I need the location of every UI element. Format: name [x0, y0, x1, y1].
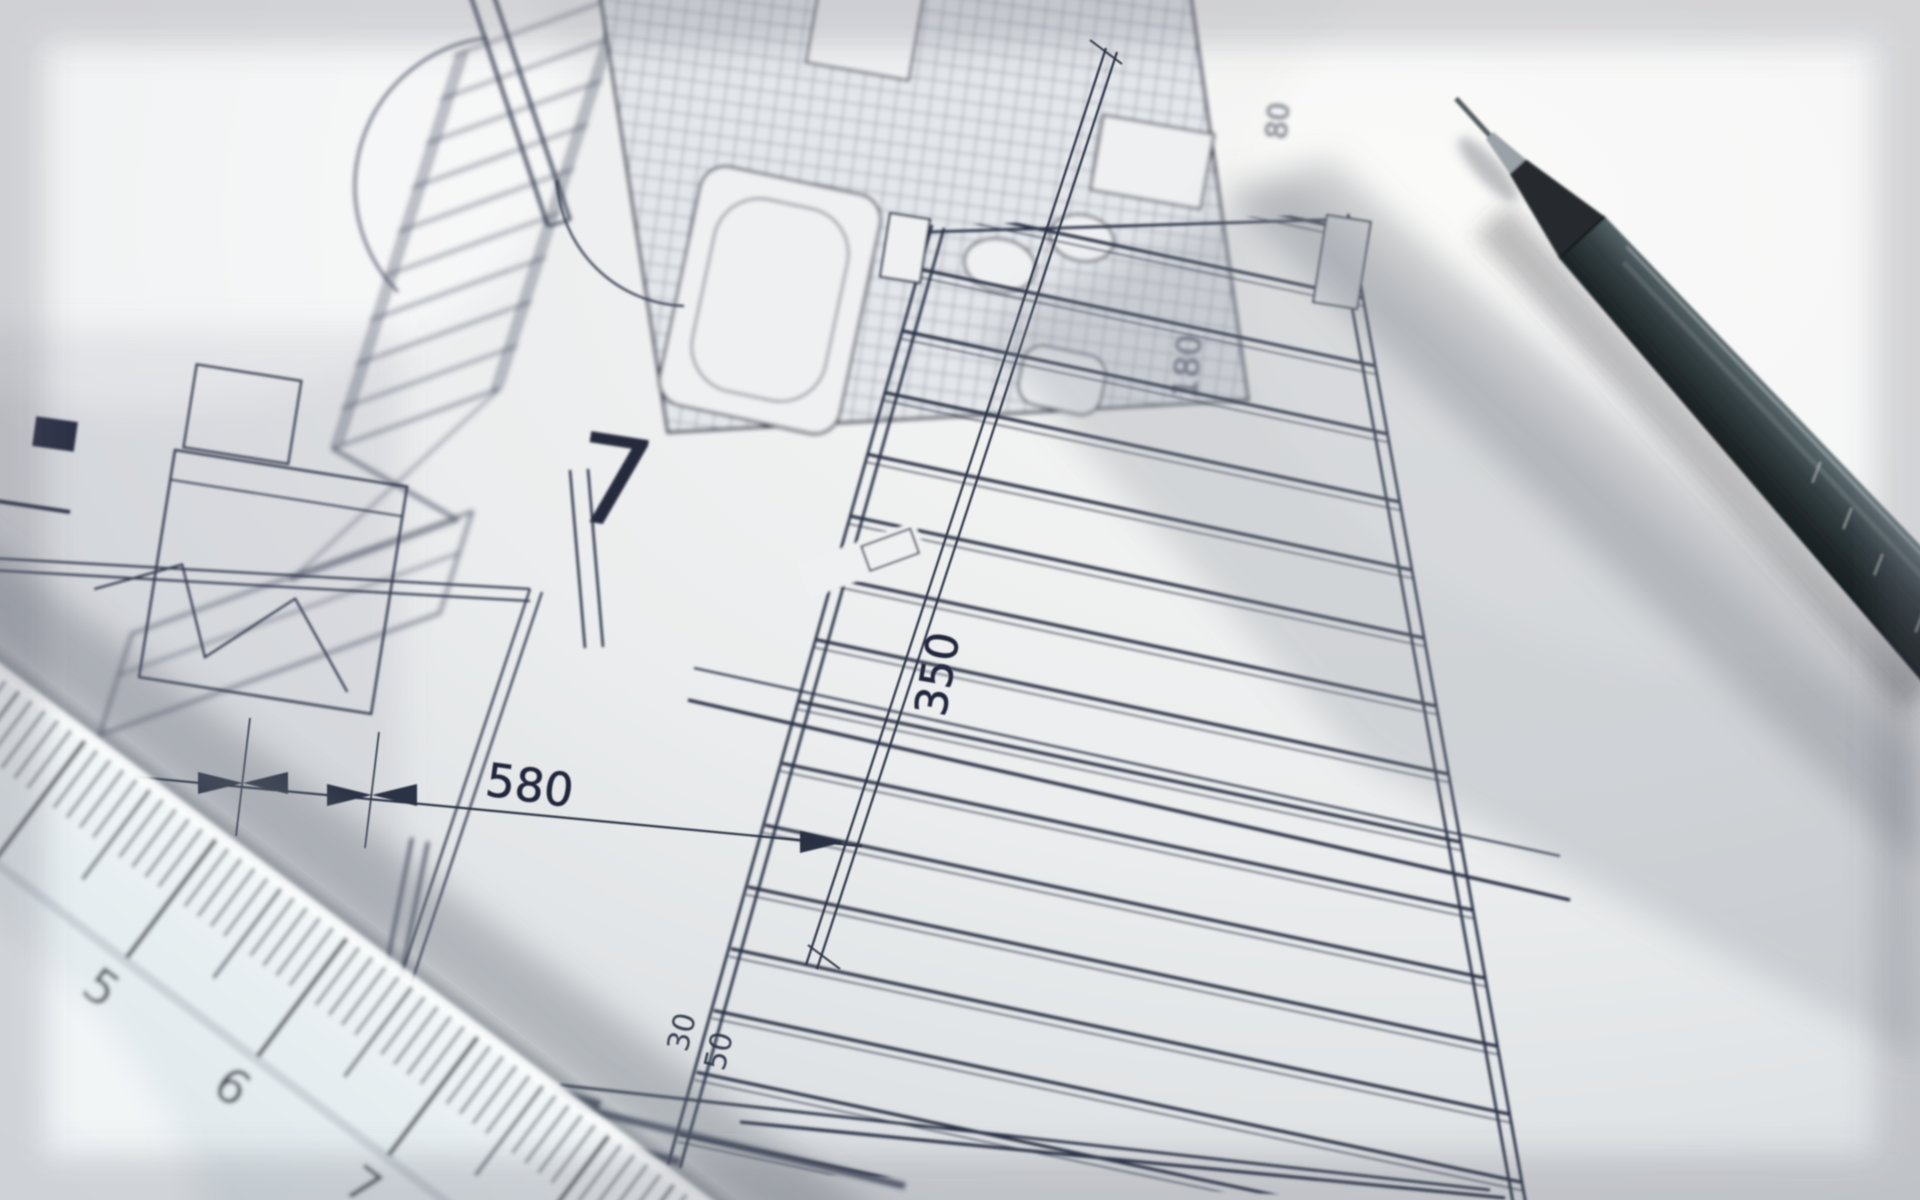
- photo-floorplan-scene: 7 580 350 30 50 180 80: [0, 0, 1920, 1200]
- dimension-label-80: 80: [1259, 101, 1296, 141]
- scene-canvas: 7 580 350 30 50 180 80: [0, 0, 1920, 1200]
- wall-post-top: [880, 213, 930, 282]
